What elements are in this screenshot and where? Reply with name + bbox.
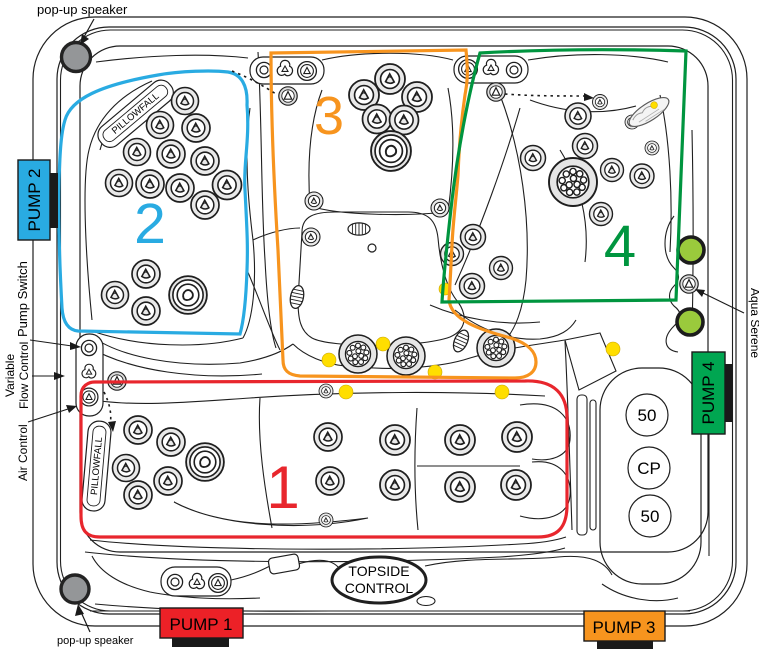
svg-text:PUMP 1: PUMP 1 [170,615,233,634]
svg-text:4: 4 [604,214,636,279]
svg-text:TOPSIDE: TOPSIDE [348,563,409,579]
svg-text:pop-up speaker: pop-up speaker [57,635,134,647]
svg-text:Flow Control: Flow Control [17,342,31,409]
svg-text:50: 50 [641,507,660,526]
svg-text:PUMP 4: PUMP 4 [699,362,718,425]
svg-text:PUMP 3: PUMP 3 [593,618,656,637]
svg-text:PUMP 2: PUMP 2 [25,169,44,232]
svg-text:Pump Switch: Pump Switch [15,261,30,337]
svg-text:Aqua Serene: Aqua Serene [748,288,759,358]
svg-text:1: 1 [266,454,299,521]
svg-text:Air Control: Air Control [16,424,30,481]
svg-text:CONTROL: CONTROL [345,580,414,596]
svg-text:Variable: Variable [3,354,17,397]
svg-text:3: 3 [314,86,344,146]
svg-text:pop-up speaker: pop-up speaker [37,2,128,17]
svg-text:50: 50 [638,406,657,425]
svg-text:CP: CP [637,459,661,478]
svg-text:2: 2 [134,192,166,256]
